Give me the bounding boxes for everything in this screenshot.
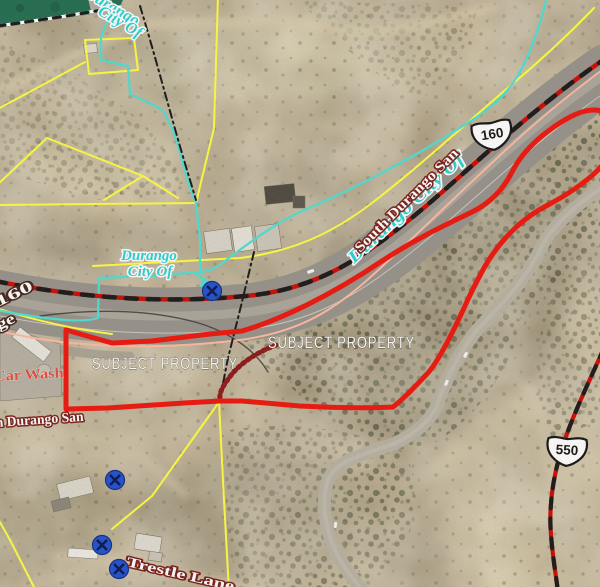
green-zone-texture <box>50 2 60 12</box>
crossing-marker-icon <box>203 282 222 301</box>
aerial-map: 160 550 SUBJECT PROPERTY SUBJECT PROPERT… <box>0 0 600 587</box>
subject-property-label-right: SUBJECT PROPERTY <box>268 333 415 352</box>
green-zone-texture <box>16 4 24 12</box>
city-limit-label-center-line1: Durango <box>120 248 177 264</box>
aerial-map-viewport: 160 550 SUBJECT PROPERTY SUBJECT PROPERT… <box>0 0 600 587</box>
building <box>204 228 233 253</box>
building <box>264 183 296 204</box>
crossing-marker-icon <box>106 471 125 490</box>
building <box>293 196 305 208</box>
subject-property-label-left: SUBJECT PROPERTY <box>92 354 238 373</box>
city-limit-label-center-line2: City Of <box>128 264 175 280</box>
crossing-marker-icon <box>93 536 112 555</box>
us-550-shield-number: 550 <box>555 442 578 458</box>
